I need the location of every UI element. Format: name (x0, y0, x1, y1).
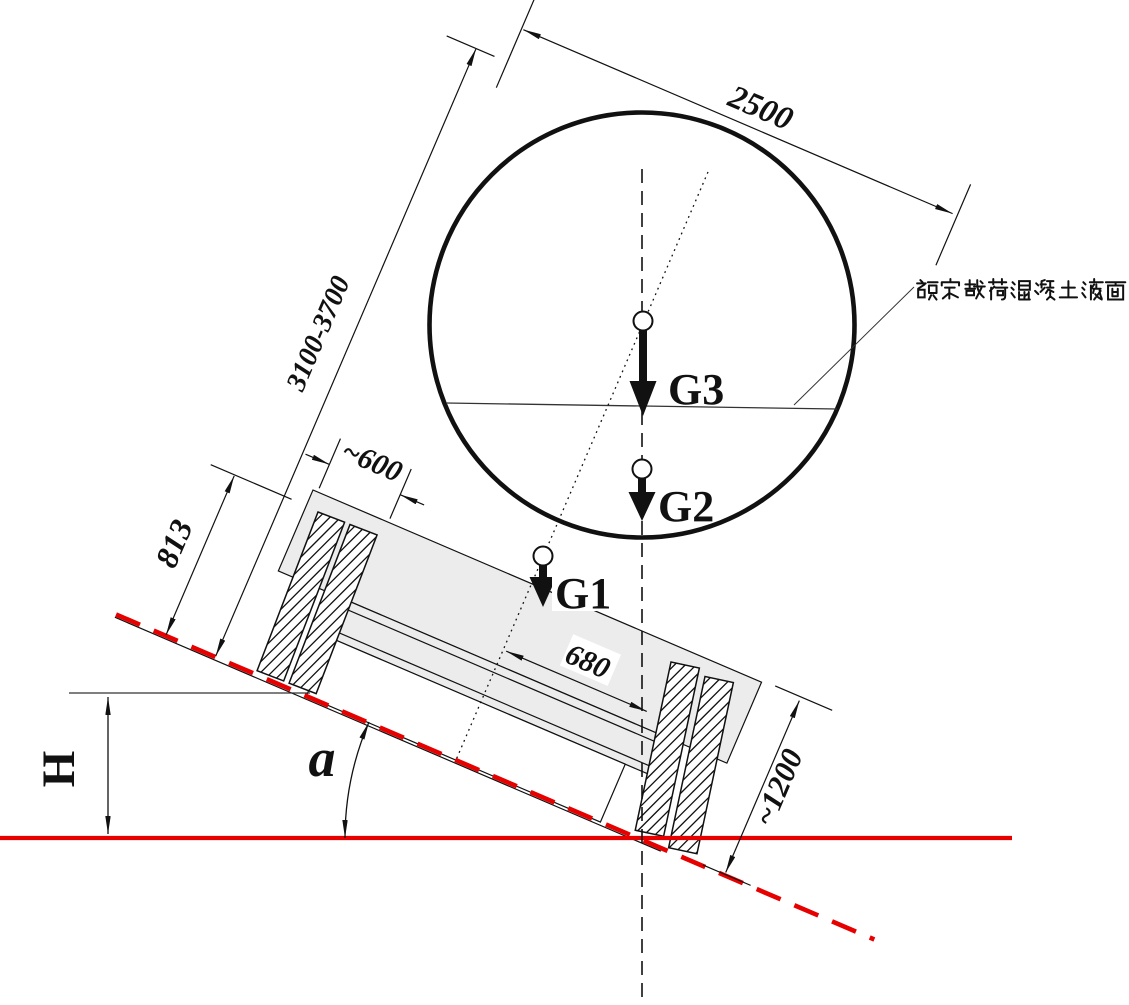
svg-text:G1: G1 (555, 569, 611, 618)
svg-text:G3: G3 (668, 365, 724, 414)
svg-text:G2: G2 (658, 482, 714, 531)
svg-text:H: H (33, 751, 85, 788)
svg-text:a: a (309, 728, 336, 788)
